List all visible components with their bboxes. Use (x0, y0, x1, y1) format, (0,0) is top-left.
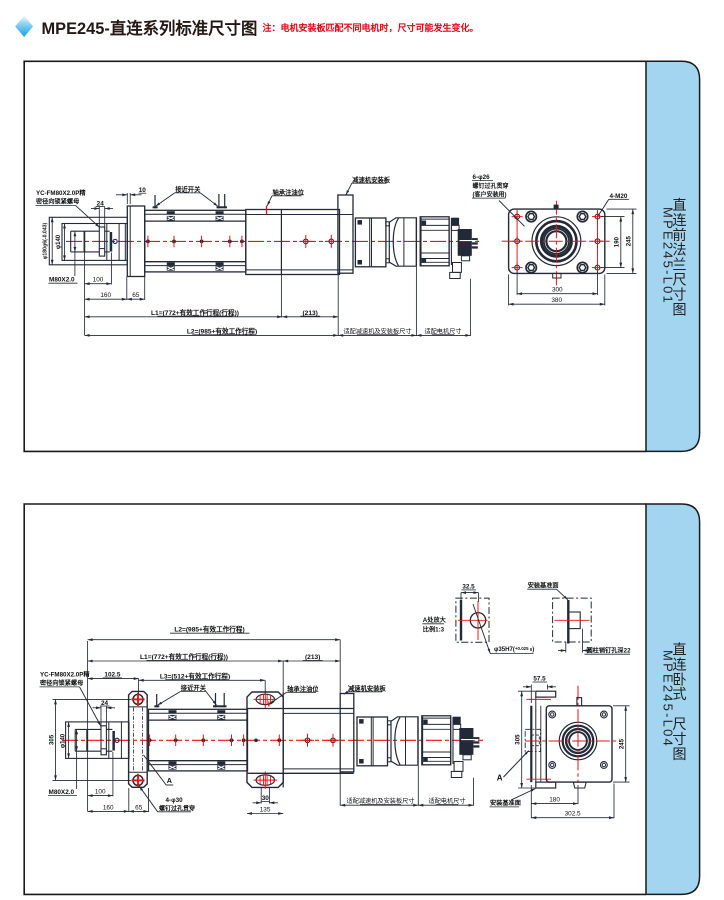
svg-text:φ140: φ140 (60, 733, 66, 748)
svg-text:L2=(985+有效工作行程): L2=(985+有效工作行程) (187, 326, 257, 335)
svg-text:180: 180 (549, 797, 560, 804)
svg-text:135: 135 (260, 807, 271, 814)
svg-text:φ140: φ140 (56, 234, 62, 249)
svg-text:轴承注油位: 轴承注油位 (287, 684, 319, 693)
svg-text:YC-FM80X2.0P精: YC-FM80X2.0P精 (40, 670, 90, 678)
svg-text:安装基准面: 安装基准面 (528, 582, 559, 590)
svg-text:302.5: 302.5 (565, 811, 581, 818)
svg-text:L1=(772+有效工作行程(行程)): L1=(772+有效工作行程(行程)) (151, 308, 239, 317)
svg-text:φ35H7(+0.025 0): φ35H7(+0.025 0) (494, 646, 534, 653)
svg-text:A: A (167, 776, 172, 785)
svg-text:密径向锁紧螺母: 密径向锁紧螺母 (40, 679, 83, 687)
svg-text:安装基准面: 安装基准面 (490, 799, 521, 807)
svg-text:57.5: 57.5 (533, 675, 546, 682)
svg-text:φ180g6(-0.043): φ180g6(-0.043) (43, 222, 49, 259)
svg-text:300: 300 (552, 287, 563, 294)
svg-text:减速机安装板: 减速机安装板 (352, 175, 390, 184)
svg-text:接近开关: 接近开关 (181, 683, 207, 692)
svg-text:32.5: 32.5 (462, 583, 475, 590)
svg-text:密径向锁紧螺母: 密径向锁紧螺母 (36, 198, 79, 206)
svg-text:图: 图 (672, 747, 686, 763)
svg-text:比例1:3: 比例1:3 (423, 625, 445, 633)
svg-text:螺钉过孔贯穿: 螺钉过孔贯穿 (473, 182, 509, 190)
svg-text:M80X2.0: M80X2.0 (49, 789, 75, 796)
svg-text:注：电机安装板匹配不同电机时，尺寸可能发生变化。: 注：电机安装板匹配不同电机时，尺寸可能发生变化。 (263, 22, 479, 33)
svg-text:65: 65 (135, 804, 143, 811)
svg-text:A: A (497, 774, 503, 783)
svg-text:100: 100 (93, 277, 104, 284)
svg-text:适配电机尺寸: 适配电机尺寸 (428, 797, 465, 805)
svg-text:L3=(512+有效工作行程): L3=(512+有效工作行程) (160, 671, 230, 680)
svg-text:4-φ30: 4-φ30 (166, 797, 184, 804)
svg-text:245: 245 (626, 236, 633, 247)
svg-text:适配减速机及安装板尺寸: 适配减速机及安装板尺寸 (346, 797, 414, 805)
svg-text:L1=(772+有效工作行程(行程)): L1=(772+有效工作行程(行程)) (140, 652, 228, 661)
svg-text:减速机安装板: 减速机安装板 (348, 683, 386, 692)
svg-text:MPE245-L01: MPE245-L01 (661, 207, 676, 305)
svg-text:轴承注油位: 轴承注油位 (273, 187, 305, 196)
svg-text:YC-FM80X2.0P精: YC-FM80X2.0P精 (36, 189, 86, 197)
svg-text:6-φ26: 6-φ26 (473, 174, 491, 181)
svg-text:适配减速机及安装板尺寸: 适配减速机及安装板尺寸 (343, 327, 411, 335)
svg-text:305: 305 (48, 734, 55, 745)
svg-text:380: 380 (551, 297, 562, 304)
svg-text:4-M20: 4-M20 (610, 193, 628, 200)
svg-text:190: 190 (614, 236, 621, 247)
svg-text:245: 245 (619, 738, 626, 749)
svg-text:M80X2.0: M80X2.0 (49, 277, 75, 284)
svg-text:MPE245-直连系列标准尺寸图: MPE245-直连系列标准尺寸图 (42, 19, 258, 38)
svg-text:100: 100 (95, 789, 106, 796)
svg-text:160: 160 (100, 292, 111, 299)
svg-text:65: 65 (132, 292, 140, 299)
svg-text:MPE245-L04: MPE245-L04 (661, 650, 676, 748)
svg-text:接近开关: 接近开关 (175, 185, 201, 194)
svg-text:160: 160 (103, 804, 114, 811)
svg-text:圆柱销钉孔深22: 圆柱销钉孔深22 (587, 647, 632, 655)
svg-text:305: 305 (515, 734, 522, 745)
svg-text:A处放大: A处放大 (423, 616, 447, 624)
svg-text:L2=(985+有效工作行程): L2=(985+有效工作行程) (174, 625, 244, 634)
svg-text:102.5: 102.5 (104, 672, 120, 679)
svg-text:螺钉过孔贯穿: 螺钉过孔贯穿 (159, 804, 195, 812)
svg-text:适配电机尺寸: 适配电机尺寸 (424, 327, 461, 335)
svg-text:(客户安装用): (客户安装用) (473, 191, 507, 199)
